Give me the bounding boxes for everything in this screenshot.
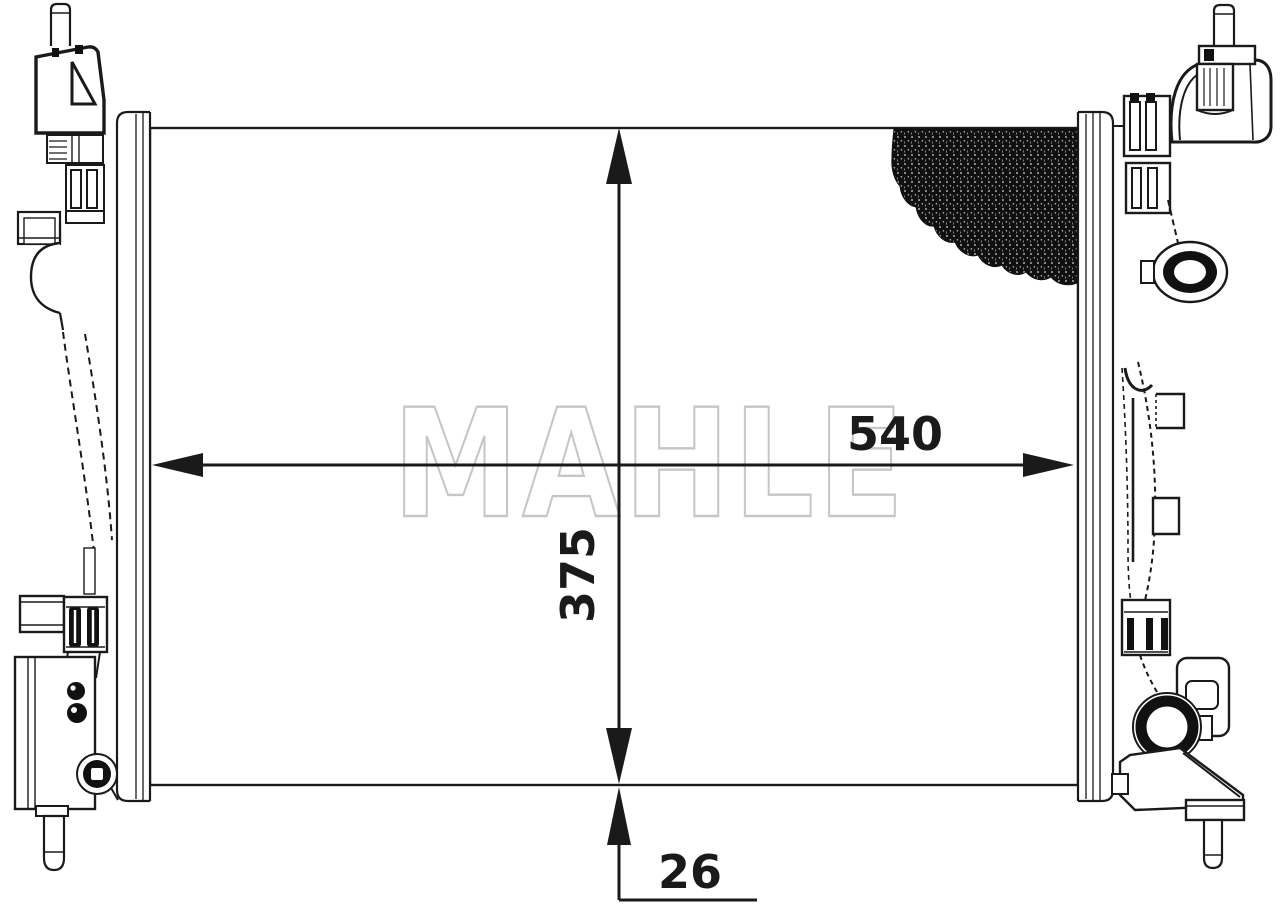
flange — [66, 211, 104, 223]
depth-dimension: 26 — [607, 787, 757, 900]
arrowhead-up — [607, 787, 631, 845]
bracket-lug — [75, 45, 83, 54]
bracket-notch — [1112, 774, 1128, 794]
inlet-port-bore — [1174, 260, 1206, 284]
plug-highlight — [71, 707, 77, 713]
bulge-stem — [60, 313, 63, 330]
clip-slot — [87, 170, 97, 208]
radiator-technical-drawing: MAHLE — [0, 0, 1280, 916]
tank-bulge — [31, 243, 60, 313]
arrowhead-left — [152, 453, 203, 477]
mount-pin-top-right — [1214, 5, 1234, 46]
depth-dimension-label: 26 — [658, 845, 722, 899]
hidden-edge — [1140, 655, 1157, 692]
right-tank-profile — [1122, 362, 1184, 618]
plug-highlight — [70, 685, 75, 690]
clip-slot-dark — [1146, 618, 1153, 650]
drawing-svg: MAHLE — [0, 0, 1280, 916]
clip-lug — [1130, 93, 1139, 101]
drain-port-square — [91, 768, 103, 780]
bottom-left-mount — [15, 596, 118, 870]
drain-plug-dot — [67, 682, 85, 700]
clip-slot-dark — [1127, 618, 1134, 650]
side-bar-inner — [24, 218, 55, 244]
fin-cutaway-area — [892, 129, 1077, 285]
clip-slot — [1148, 168, 1157, 208]
clip-slot — [1146, 102, 1156, 150]
hidden-edge — [85, 334, 112, 540]
bracket-lug — [52, 48, 59, 57]
mount-pin-top-left — [51, 4, 70, 46]
port-nub — [1141, 261, 1154, 283]
clip-slot-dark — [1161, 618, 1168, 650]
right-tank-strip — [1078, 112, 1113, 801]
hidden-detail — [84, 548, 95, 594]
bracket-body — [36, 47, 104, 133]
arrowhead-right — [1023, 453, 1074, 477]
clip-slot — [1130, 102, 1140, 150]
arrowhead-down — [606, 728, 632, 784]
clip-lug — [1146, 93, 1155, 101]
pin-base — [1186, 800, 1244, 820]
height-dimension-label: 375 — [551, 527, 605, 623]
hidden-edge — [63, 332, 94, 552]
top-right-mount — [1113, 5, 1271, 302]
tank-tab — [1156, 394, 1184, 428]
width-dimension-label: 540 — [847, 407, 943, 461]
top-left-mount — [18, 4, 104, 330]
tank-hook — [1125, 368, 1152, 390]
left-tank-strip — [117, 112, 150, 801]
hidden-tank-edge — [1122, 368, 1133, 615]
bracket-lug — [1204, 49, 1214, 61]
hidden-tank-edge — [1138, 362, 1155, 618]
arrowhead-up — [606, 128, 632, 184]
mount-pin-bottom-right — [1204, 820, 1222, 868]
drain-plug-dot — [67, 703, 87, 723]
bracket-cylinder — [1197, 64, 1233, 110]
tank-tab — [1153, 498, 1179, 534]
clip-slot — [71, 170, 81, 208]
pin-base — [36, 806, 68, 816]
mount-pin-bottom-left — [44, 816, 64, 870]
clip-slot — [1132, 168, 1141, 208]
bottom-right-mount — [1112, 600, 1244, 868]
